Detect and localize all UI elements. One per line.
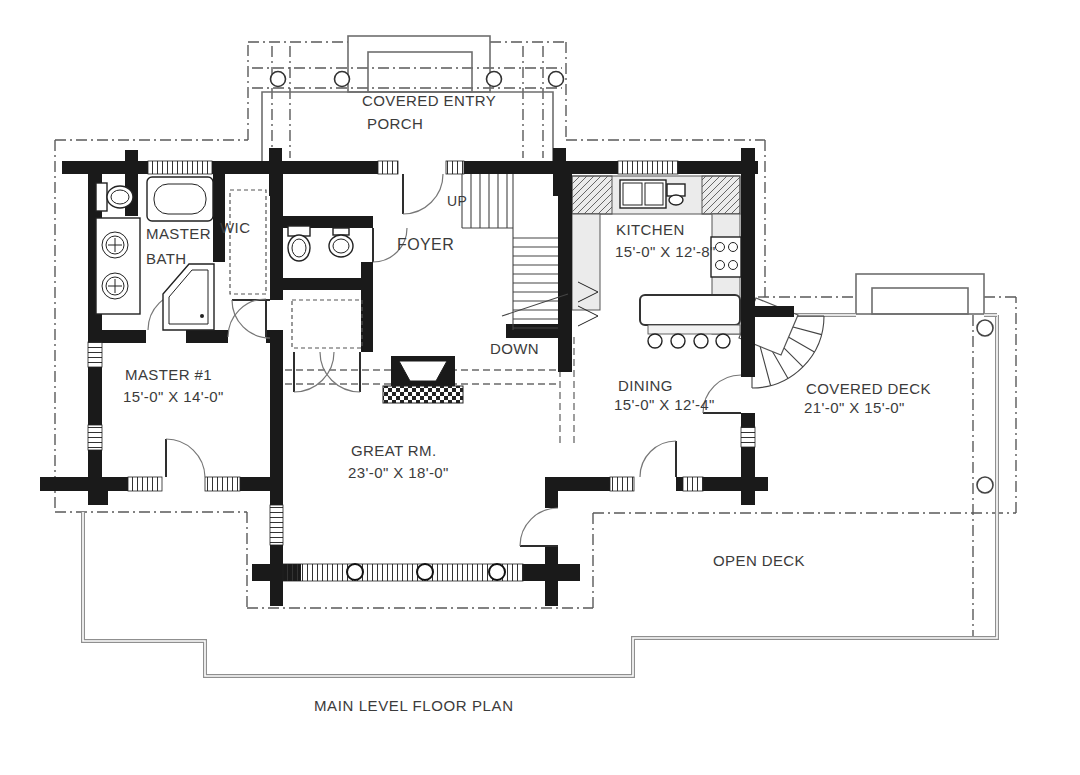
stair-label-up: UP [447,194,467,209]
floor-plan: COVERED ENTRY PORCH MASTER BATH WIC FOYE… [0,0,1080,775]
deck-outline [83,315,997,676]
room-label-master-bath-line1: MASTER [146,226,211,243]
room-label-covered-deck: COVERED DECK [806,381,931,398]
stairs [462,174,568,330]
room-label-wic: WIC [220,220,250,237]
pedestal-sink-icon [329,228,353,257]
closet-shelving [230,190,362,348]
kitchen-sink-icon [620,180,685,208]
room-label-great-room: GREAT RM. [351,443,437,460]
room-dims-dining: 15'-0" X 12'-4" [614,397,715,414]
room-label-covered-entry-porch-line2: PORCH [367,116,423,133]
fireplace-icon [383,356,463,403]
toilet-icon [96,183,133,211]
deck-posts [977,320,993,493]
shower-icon [163,264,214,330]
porch-columns [271,72,564,87]
room-label-master-1: MASTER #1 [125,367,212,384]
room-label-kitchen: KITCHEN [616,222,685,239]
bathtub-icon [147,177,213,221]
room-label-foyer: FOYER [397,236,454,254]
room-dims-kitchen: 15'-0" X 12'-8" [615,244,716,261]
bar-stools [648,334,730,348]
powder-toilet-icon [288,226,310,261]
stair-label-down: DOWN [490,341,539,358]
covered-deck-bump [856,274,984,314]
room-label-covered-entry-porch-line1: COVERED ENTRY [362,93,496,110]
kitchen-island [640,295,740,334]
room-label-dining: DINING [618,378,673,395]
sheet-title: MAIN LEVEL FLOOR PLAN [314,698,514,715]
room-dims-great-room: 23'-0" X 18'-0" [348,465,449,482]
room-label-open-deck: OPEN DECK [713,553,805,570]
room-dims-master-1: 15'-0" X 14'-0" [123,389,224,406]
room-dims-covered-deck: 21'-0" X 15'-0" [804,400,905,417]
vanity-sinks [96,218,140,314]
room-label-master-bath-line2: BATH [146,251,187,268]
